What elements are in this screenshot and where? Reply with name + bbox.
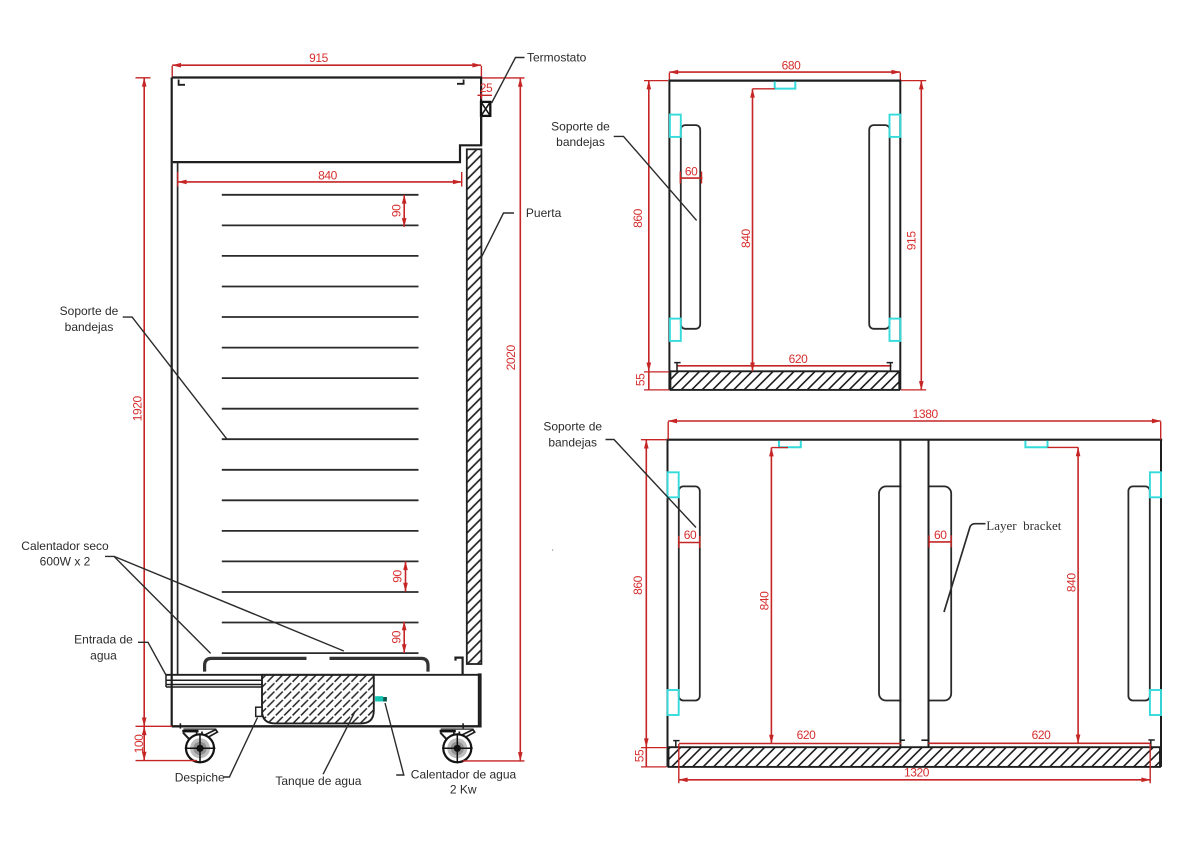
svg-text:Calentador seco: Calentador seco [21,539,109,553]
svg-text:90: 90 [391,570,405,583]
svg-text:620: 620 [789,352,809,366]
svg-text:860: 860 [631,208,645,228]
svg-text:Soporte de: Soporte de [551,120,610,134]
svg-text:Despiche: Despiche [175,771,225,785]
svg-text:620: 620 [1032,728,1052,742]
svg-text:55: 55 [632,749,646,762]
svg-text:100: 100 [132,734,146,754]
svg-text:agua: agua [90,649,117,663]
svg-text:Soporte de: Soporte de [60,304,119,318]
svg-text:2 Kw: 2 Kw [450,783,477,797]
svg-text:Calentador de agua: Calentador de agua [411,768,517,782]
svg-text:90: 90 [389,630,403,643]
svg-text:600W x 2: 600W x 2 [40,555,91,569]
svg-text:840: 840 [758,591,772,611]
svg-text:90: 90 [389,204,403,217]
svg-text:60: 60 [934,528,947,542]
svg-text:860: 860 [631,575,645,595]
svg-text:840: 840 [1064,573,1078,593]
svg-text:680: 680 [782,58,802,72]
svg-text:Soporte de: Soporte de [543,420,602,434]
svg-text:Entrada de: Entrada de [74,633,133,647]
svg-text:bandejas: bandejas [65,320,114,334]
svg-text:Termostato: Termostato [527,51,587,65]
svg-text:1320: 1320 [904,765,930,779]
svg-text:840: 840 [739,228,753,248]
svg-text:840: 840 [318,168,338,182]
svg-text:Tanque de agua: Tanque de agua [275,774,361,788]
svg-text:620: 620 [797,728,817,742]
svg-text:1920: 1920 [131,395,145,421]
svg-text:Layer bracket: Layer bracket [986,518,1061,533]
svg-text:60: 60 [684,528,697,542]
svg-text:55: 55 [633,373,647,386]
svg-text:60: 60 [685,164,698,178]
svg-text:2020: 2020 [504,345,518,371]
svg-text:1380: 1380 [913,407,939,421]
svg-text:915: 915 [905,231,919,251]
svg-text:Puerta: Puerta [526,206,562,220]
svg-text:bandejas: bandejas [556,135,605,149]
svg-text:915: 915 [309,51,329,65]
svg-text:bandejas: bandejas [548,436,597,450]
